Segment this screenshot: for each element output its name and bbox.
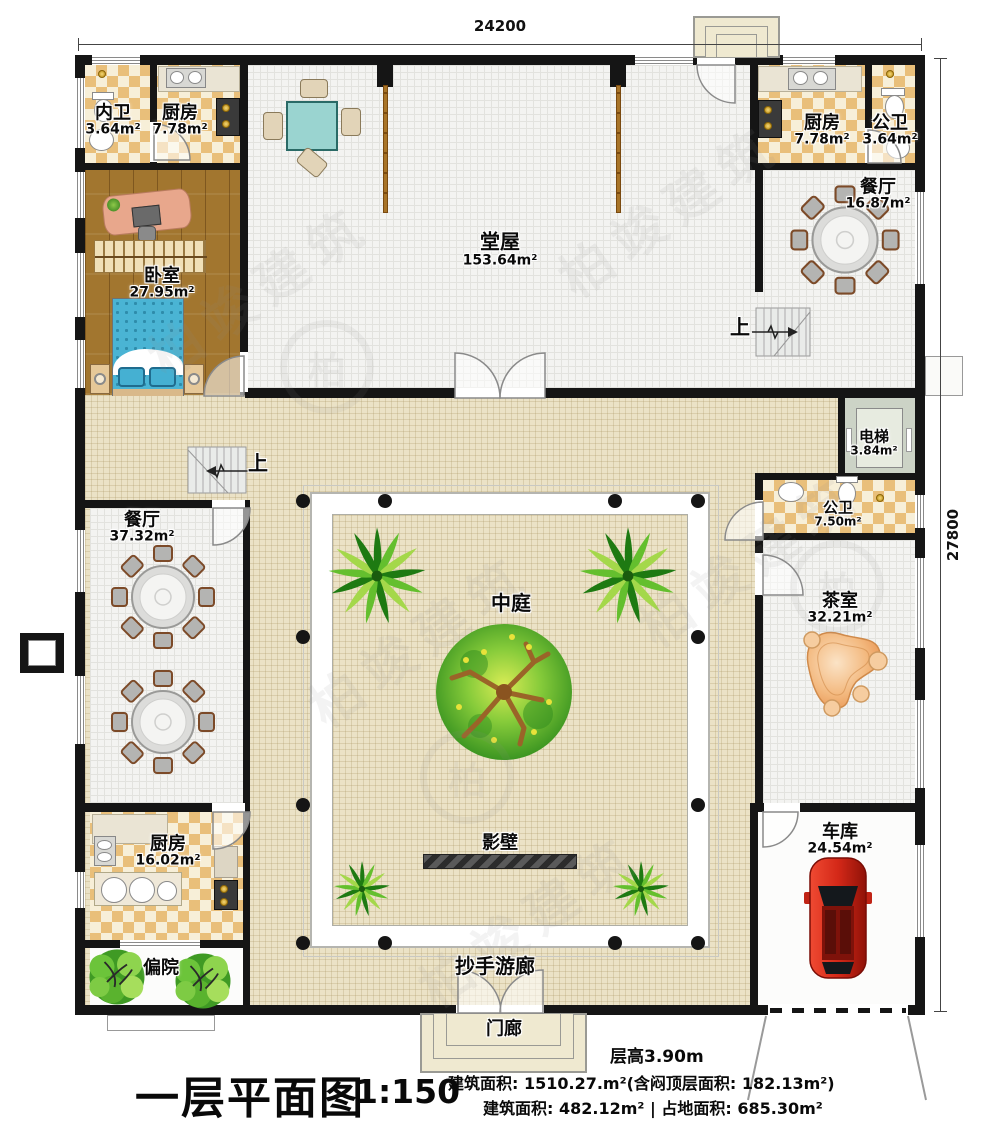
wall [85, 163, 245, 170]
room-label-screen-wall: 影壁 [482, 833, 518, 852]
bed-frame [113, 389, 183, 396]
wall [545, 388, 915, 398]
door-opening [755, 500, 763, 536]
side-step [925, 356, 963, 396]
column [691, 936, 705, 950]
column [296, 798, 310, 812]
floor-height: 层高3.90m [610, 1042, 704, 1067]
garage-door [770, 1008, 906, 1013]
column [296, 630, 310, 644]
window [75, 872, 85, 908]
island-bowl [157, 881, 177, 901]
dimension-tick [934, 1011, 947, 1012]
wall [245, 388, 455, 398]
room-label-courtyard: 中庭 [491, 593, 531, 615]
stairs-up-label: 上 [730, 317, 750, 339]
island-bowl [101, 877, 127, 903]
room-label-porch: 门廊 [486, 1019, 522, 1038]
wall [240, 65, 248, 395]
window [75, 530, 85, 592]
column [608, 936, 622, 950]
area-line-1: 建筑面积: 1510.27.m²(含闷顶层面积: 182.13m²) [448, 1070, 835, 1094]
room-label-tangwu: 堂屋 153.64m² [463, 232, 538, 269]
sink-bowl [97, 852, 112, 862]
kitchen-island [94, 872, 182, 906]
tea-room-floor [763, 540, 915, 803]
hall-chair [263, 112, 283, 140]
room-label-tea-room: 茶室 32.21m² [807, 592, 872, 627]
nightstand-lamp-icon [188, 373, 200, 385]
dining-left-floor [90, 508, 243, 803]
window [915, 558, 925, 648]
nightstand [184, 364, 204, 394]
area-line-2: 建筑面积: 482.12m² | 占地面积: 685.30m² [483, 1095, 823, 1119]
hall-chair [341, 108, 361, 136]
room-label-kitchen-tl: 厨房 7.78m² [152, 104, 207, 139]
column [691, 798, 705, 812]
wall [755, 473, 915, 480]
nightstand [90, 364, 110, 394]
dimension-right: 27800 [944, 509, 962, 561]
room-label-dining-tr: 餐厅 16.87m² [845, 178, 910, 213]
dimension-tick [78, 38, 79, 51]
kitchen-counter [214, 846, 238, 878]
burner-icon [764, 122, 772, 130]
floor-drain-icon [886, 70, 894, 78]
elevator-rail [906, 428, 912, 452]
window [120, 940, 200, 948]
sink-basin [778, 482, 804, 502]
door-opening [240, 352, 248, 392]
pillow [149, 367, 176, 387]
sink-bowl [170, 71, 184, 84]
wood-screen [616, 85, 621, 213]
burner-icon [220, 885, 228, 893]
room-label-veranda: 抄手游廊 [455, 956, 535, 978]
island-bowl [129, 877, 155, 903]
screen-wall [423, 854, 577, 869]
wall [243, 500, 250, 1005]
hall-chair [300, 79, 328, 98]
room-label-side-yard: 偏院 [143, 958, 179, 977]
rear-porch-step [716, 34, 757, 58]
door-opening [764, 803, 800, 812]
wardrobe-rail [95, 256, 207, 258]
wall [750, 812, 758, 1005]
burner-icon [764, 106, 772, 114]
sink-bowl [97, 840, 112, 850]
plan-title: 一层平面图 [135, 1062, 365, 1121]
area-separator: | [650, 1099, 656, 1118]
door-opening [455, 388, 545, 398]
stove [214, 880, 238, 910]
wall [750, 163, 915, 170]
room-label-garage: 车库 24.54m² [807, 823, 872, 858]
bed [112, 298, 184, 396]
window [75, 78, 85, 148]
desk-monitor [131, 205, 161, 228]
room-label-elevator: 电梯 3.84m² [850, 428, 897, 457]
sink-bowl [793, 71, 808, 85]
column [691, 630, 705, 644]
door-opening [755, 553, 763, 595]
desk-plant-icon [106, 198, 120, 212]
wall-niche-inner [28, 640, 56, 666]
window [75, 172, 85, 218]
dimension-line-top [78, 44, 922, 45]
window [915, 192, 925, 284]
room-label-dining-left: 餐厅 37.32m² [109, 511, 174, 546]
room-label-kitchen-tr: 厨房 7.78m² [794, 114, 849, 149]
pilaster [610, 65, 626, 87]
sink-bowl [188, 71, 202, 84]
wall [838, 398, 845, 480]
nightstand-lamp-icon [94, 373, 106, 385]
column [296, 936, 310, 950]
plan-scale: 1:150 [355, 1072, 460, 1111]
door-opening [212, 803, 245, 812]
stairs-up-label: 上 [248, 453, 268, 475]
column [691, 494, 705, 508]
door-opening [212, 500, 245, 508]
floor-drain-icon [98, 70, 106, 78]
wall [755, 533, 915, 540]
room-label-gongwei-tr: 公卫 3.64m² [862, 114, 917, 149]
window [635, 55, 693, 65]
window [915, 495, 925, 528]
room-label-neiwei: 内卫 3.64m² [85, 104, 140, 139]
wall [755, 170, 763, 292]
dimension-line-right [940, 58, 941, 1012]
burner-icon [220, 898, 228, 906]
column [378, 494, 392, 508]
window [75, 253, 85, 317]
floor-plan: 柏竣建筑 柏竣建筑 柏竣建筑 柏竣建筑 柏竣建筑 柏 柏 柏 内卫 3.64m²… [0, 0, 1000, 1121]
sink-bowl [813, 71, 828, 85]
room-label-gongwei-mid: 公卫 7.50m² [814, 499, 861, 528]
burner-icon [222, 120, 230, 128]
dimension-top: 24200 [474, 17, 526, 35]
room-label-bedroom: 卧室 27.95m² [129, 267, 194, 302]
room-label-kitchen-bl: 厨房 16.02m² [135, 835, 200, 870]
building-area: 建筑面积: 482.12m² [483, 1099, 644, 1118]
land-area: 占地面积: 685.30m² [661, 1099, 822, 1118]
floor-drain-icon [876, 494, 884, 502]
hall-table [286, 101, 338, 151]
front-step [107, 1015, 215, 1031]
window [915, 845, 925, 937]
dimension-tick [921, 38, 922, 51]
pillow [118, 367, 145, 387]
window [75, 676, 85, 744]
window [915, 700, 925, 788]
window [783, 55, 835, 65]
dimension-tick [934, 58, 947, 59]
wood-screen [383, 85, 388, 213]
burner-icon [222, 104, 230, 112]
column [608, 494, 622, 508]
column [378, 936, 392, 950]
window [75, 340, 85, 388]
window [92, 55, 140, 65]
column [296, 494, 310, 508]
wall [750, 65, 758, 170]
pilaster [377, 65, 393, 87]
